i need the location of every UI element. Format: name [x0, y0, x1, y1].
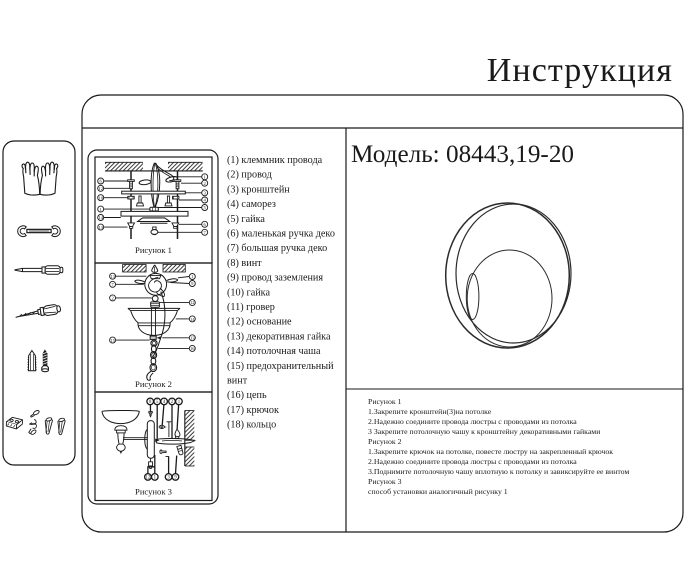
svg-text:Рисунок 1: Рисунок 1 — [368, 397, 402, 406]
svg-text:14: 14 — [190, 317, 195, 322]
svg-text:Рисунок 2: Рисунок 2 — [368, 437, 402, 446]
svg-text:Рисунок 1: Рисунок 1 — [135, 245, 172, 255]
svg-text:(13) декоративная гайка: (13) декоративная гайка — [227, 331, 331, 342]
svg-text:12: 12 — [190, 300, 195, 305]
svg-text:(3) кронштейн: (3) кронштейн — [227, 184, 290, 195]
svg-text:Рисунок 3: Рисунок 3 — [368, 477, 402, 486]
svg-text:(8) винт: (8) винт — [227, 258, 262, 269]
svg-text:10: 10 — [98, 195, 103, 200]
svg-text:способ установки аналогичный р: способ установки аналогичный рисунку 1 — [368, 487, 508, 496]
svg-text:Рисунок 3: Рисунок 3 — [135, 487, 172, 497]
svg-text:13: 13 — [190, 336, 195, 341]
svg-text:(9) провод заземления: (9) провод заземления — [227, 273, 323, 284]
svg-text:2.Надежно соедините провода лю: 2.Надежно соедините провода люстры с про… — [368, 417, 577, 426]
svg-text:(16) цепь: (16) цепь — [227, 390, 267, 401]
svg-text:14: 14 — [98, 215, 103, 220]
svg-text:12: 12 — [146, 476, 151, 481]
svg-text:(10) гайка: (10) гайка — [227, 287, 270, 298]
svg-text:(12) основание: (12) основание — [227, 317, 292, 328]
svg-text:(5) гайка: (5) гайка — [227, 214, 265, 225]
svg-text:(6) маленькая ручка деко: (6) маленькая ручка деко — [227, 229, 335, 240]
svg-text:3 Закрепите потолочную чашу к: 3 Закрепите потолочную чашу к кронштейну… — [368, 427, 600, 436]
svg-text:(1) клеммник провода: (1) клеммник провода — [227, 155, 323, 166]
svg-text:13: 13 — [98, 225, 103, 230]
svg-text:16: 16 — [190, 346, 195, 351]
svg-text:12: 12 — [98, 186, 103, 191]
svg-text:13: 13 — [110, 274, 115, 279]
svg-text:1.Закрепите крючок на потолке,: 1.Закрепите крючок на потолке, повесте л… — [368, 447, 613, 456]
svg-text:Инструкция: Инструкция — [487, 52, 673, 89]
svg-text:(15) предохранительный: (15) предохранительный — [227, 361, 334, 372]
svg-text:(11) гровер: (11) гровер — [227, 302, 275, 313]
svg-text:Модель: 08443,19-20: Модель: 08443,19-20 — [351, 141, 574, 168]
svg-text:Рисунок 2: Рисунок 2 — [135, 379, 172, 389]
svg-text:(2) провод: (2) провод — [227, 170, 272, 181]
svg-text:3.Поднимите потолочную чашу вп: 3.Поднимите потолочную чашу вплотную к п… — [368, 467, 629, 476]
svg-text:(4) саморез: (4) саморез — [227, 199, 276, 210]
svg-text:15: 15 — [110, 338, 115, 343]
svg-text:винт: винт — [227, 376, 248, 387]
svg-text:(7) большая ручка деко: (7) большая ручка деко — [227, 243, 327, 254]
svg-text:(18) кольцо: (18) кольцо — [227, 420, 276, 431]
svg-text:1.Закрепите кронштейн(3)на пот: 1.Закрепите кронштейн(3)на потолке — [368, 407, 492, 416]
svg-text:(14) потолочная чаша: (14) потолочная чаша — [227, 346, 321, 357]
svg-text:2.Надежно соедините провода лю: 2.Надежно соедините провода люстры с про… — [368, 457, 577, 466]
svg-text:(17) крючок: (17) крючок — [227, 405, 279, 416]
